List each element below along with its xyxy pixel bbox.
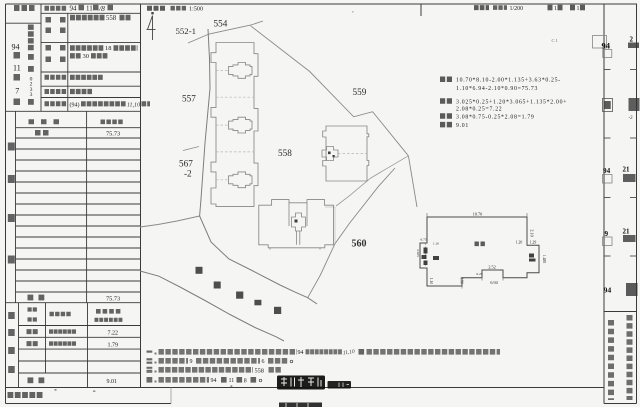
svg-text:11: 11: [13, 64, 21, 73]
svg-text:8: 8: [243, 378, 247, 384]
svg-text:2.10: 2.10: [530, 229, 535, 236]
svg-text:11,10: 11,10: [342, 349, 355, 357]
svg-text:9: 9: [190, 359, 193, 365]
svg-text:0.90: 0.90: [459, 277, 463, 283]
svg-text:1.10: 1.10: [433, 242, 439, 246]
svg-text:560: 560: [352, 239, 367, 250]
svg-text:21: 21: [623, 228, 631, 236]
svg-text:1.29: 1.29: [530, 241, 537, 245]
svg-text:7.22: 7.22: [108, 330, 119, 336]
svg-text:1: 1: [554, 6, 557, 12]
svg-text:554: 554: [214, 19, 228, 29]
svg-text:18: 18: [105, 45, 112, 52]
svg-text:1.79: 1.79: [108, 342, 119, 348]
svg-text:11: 11: [229, 378, 235, 384]
svg-text:1.10*6.94-2.10*0.90=75.73: 1.10*6.94-2.10*0.90=75.73: [456, 86, 538, 92]
svg-text:6.75: 6.75: [421, 238, 427, 242]
svg-text:2.52: 2.52: [488, 265, 495, 270]
svg-text:2.08*0.25=7.22: 2.08*0.25=7.22: [456, 107, 502, 113]
svg-text:2: 2: [630, 36, 634, 44]
svg-text:9.01: 9.01: [456, 123, 469, 129]
svg-text:11: 11: [86, 4, 93, 12]
svg-text:567: 567: [179, 159, 193, 169]
svg-text:94: 94: [70, 4, 78, 12]
svg-text:3.025: 3.025: [416, 249, 420, 257]
svg-text:558: 558: [278, 148, 292, 158]
svg-text:9.01: 9.01: [107, 379, 118, 385]
svg-text:94: 94: [211, 378, 217, 384]
svg-text:559: 559: [353, 87, 367, 97]
svg-text:3.025*0.25+1.20*3.065+1.135*2.: 3.025*0.25+1.20*3.065+1.135*2.00+: [456, 100, 567, 106]
svg-text:3: 3: [30, 92, 33, 98]
svg-text:10.70: 10.70: [473, 212, 482, 217]
svg-text:558: 558: [255, 367, 264, 374]
svg-text:6.94: 6.94: [490, 280, 498, 285]
svg-text:94: 94: [604, 286, 612, 295]
svg-text:1.10: 1.10: [429, 278, 433, 284]
svg-text:10.70*8.10-2.00*1.135+3.63*0.2: 10.70*8.10-2.00*1.135+3.63*0.25-: [456, 78, 561, 84]
svg-text:-2: -2: [184, 169, 192, 179]
svg-text:75.73: 75.73: [106, 295, 120, 302]
svg-text:6: 6: [262, 359, 265, 365]
svg-text:/8: /8: [98, 4, 105, 13]
svg-text:1.485: 1.485: [542, 255, 546, 264]
svg-text:94: 94: [602, 41, 611, 51]
svg-text:1:500: 1:500: [189, 6, 203, 13]
svg-text:94: 94: [12, 42, 20, 51]
svg-text:3.08*0.75-0.25*2.08=1.79: 3.08*0.75-0.25*2.08=1.79: [456, 115, 535, 121]
svg-text:30: 30: [83, 53, 90, 60]
svg-text:1/200: 1/200: [510, 6, 524, 12]
svg-text:94: 94: [603, 167, 611, 175]
svg-text:21: 21: [623, 166, 631, 174]
svg-text:94: 94: [298, 350, 304, 356]
svg-text:(94): (94): [70, 101, 80, 108]
svg-text:1: 1: [577, 6, 580, 12]
svg-text:552-1: 552-1: [176, 26, 197, 36]
svg-text:-2: -2: [629, 116, 634, 121]
svg-text:1.20: 1.20: [516, 241, 523, 245]
svg-text:11,10: 11,10: [127, 103, 140, 109]
svg-text:558: 558: [106, 15, 117, 22]
svg-text:C 1: C 1: [552, 38, 558, 43]
svg-text:7: 7: [15, 87, 19, 96]
svg-text:557: 557: [182, 94, 196, 104]
svg-text:0.25: 0.25: [477, 272, 483, 276]
svg-text:75.73: 75.73: [106, 131, 120, 138]
